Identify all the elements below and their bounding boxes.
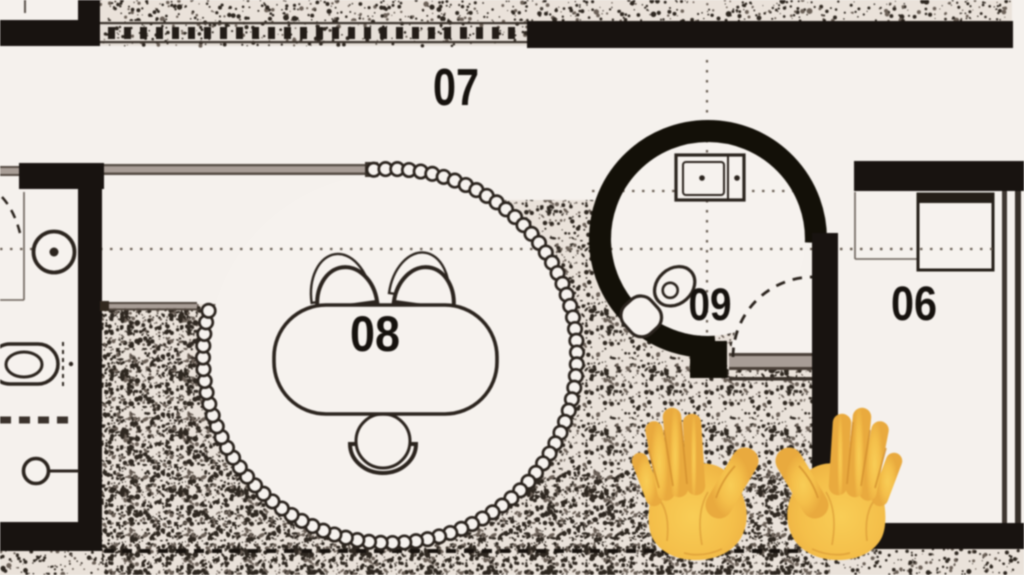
svg-text:08: 08 bbox=[350, 306, 400, 362]
svg-text:07: 07 bbox=[433, 59, 479, 117]
svg-text:09: 09 bbox=[689, 279, 732, 330]
svg-text:06: 06 bbox=[891, 278, 937, 331]
